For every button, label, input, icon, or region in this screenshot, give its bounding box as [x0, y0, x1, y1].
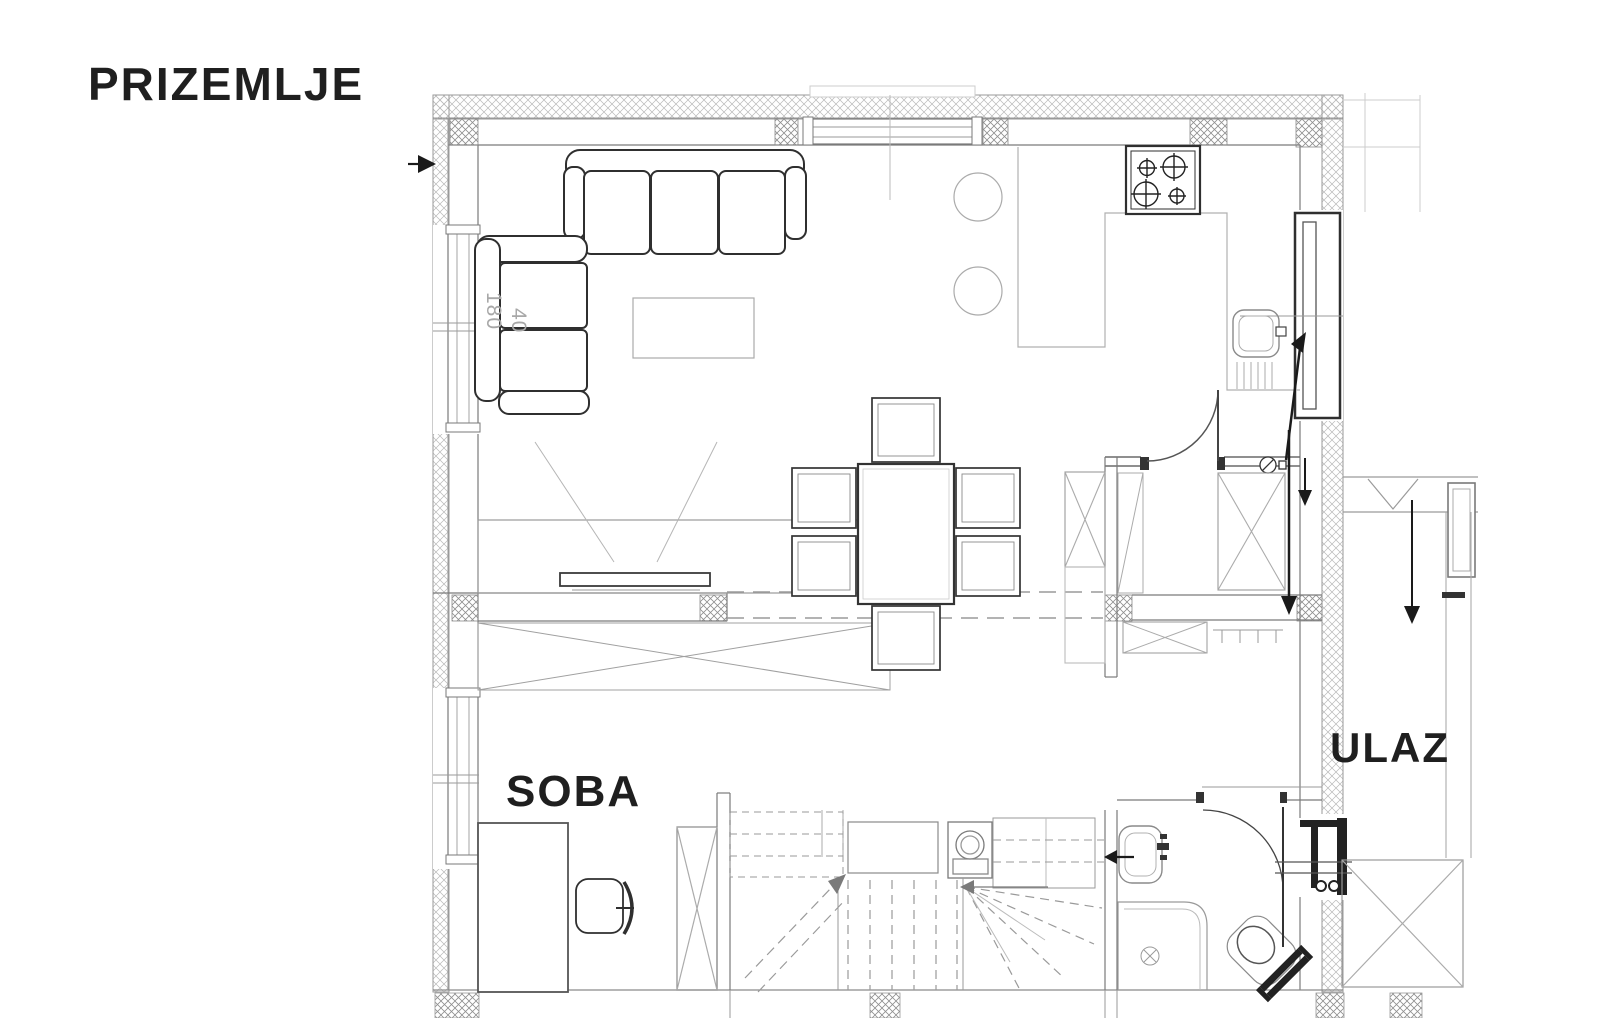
shower [1118, 902, 1207, 990]
room-label-soba: SOBA [506, 767, 641, 816]
floor-plan-drawing: PRIZEMLJE SOBA ULAZ 180 40 [0, 0, 1600, 1018]
room-label-ulaz: ULAZ [1330, 724, 1450, 771]
porch-closet [1342, 860, 1463, 987]
wardrobe [1218, 473, 1285, 590]
stove [1126, 146, 1200, 214]
valve-symbol [1260, 457, 1286, 473]
washbasin [1119, 826, 1169, 883]
overhead-cabinet-right [993, 818, 1104, 888]
wardrobe [677, 827, 717, 990]
dining-chair [792, 468, 856, 528]
soba-room [478, 823, 717, 992]
desk [478, 823, 568, 992]
dining-chair [956, 468, 1020, 528]
sofa [564, 150, 806, 254]
dining-chair [792, 536, 856, 596]
dining-table [858, 464, 954, 604]
window-left-living [433, 225, 480, 434]
toilet [1216, 905, 1313, 1002]
bathroom [1104, 807, 1313, 1002]
tv [560, 573, 710, 586]
wardrobe [1065, 472, 1105, 663]
dining-chair [872, 606, 940, 670]
hall-cabinet [1123, 622, 1207, 653]
bar-stool [954, 267, 1002, 315]
porch-entry-arrow [1404, 500, 1420, 624]
storage-door [1140, 390, 1225, 470]
storage-room [1065, 390, 1285, 663]
window-left-soba [433, 688, 480, 869]
dimension-width: 180 [482, 292, 505, 330]
entrance-door [1275, 814, 1352, 900]
floor-plan-page: PRIZEMLJE SOBA ULAZ 180 40 [0, 0, 1600, 1018]
page-title: PRIZEMLJE [88, 58, 364, 110]
dining-chair [872, 398, 940, 462]
radiator [1213, 630, 1283, 643]
coffee-table [633, 298, 754, 358]
dining-area [792, 398, 1020, 670]
staircase [730, 810, 1117, 1018]
cabinet-tall [1118, 473, 1143, 593]
wardrobe-under-wall [478, 623, 890, 690]
storage-box [848, 822, 938, 873]
dining-chair [956, 536, 1020, 596]
west-entry-arrow [408, 155, 436, 173]
washing-machine [948, 822, 992, 878]
desk-chair [576, 879, 634, 934]
dimension-depth: 40 [507, 308, 530, 333]
sink [1233, 310, 1286, 389]
bar-stool [954, 173, 1002, 221]
overhead-cabinet [730, 812, 843, 877]
kitchen [954, 146, 1300, 473]
